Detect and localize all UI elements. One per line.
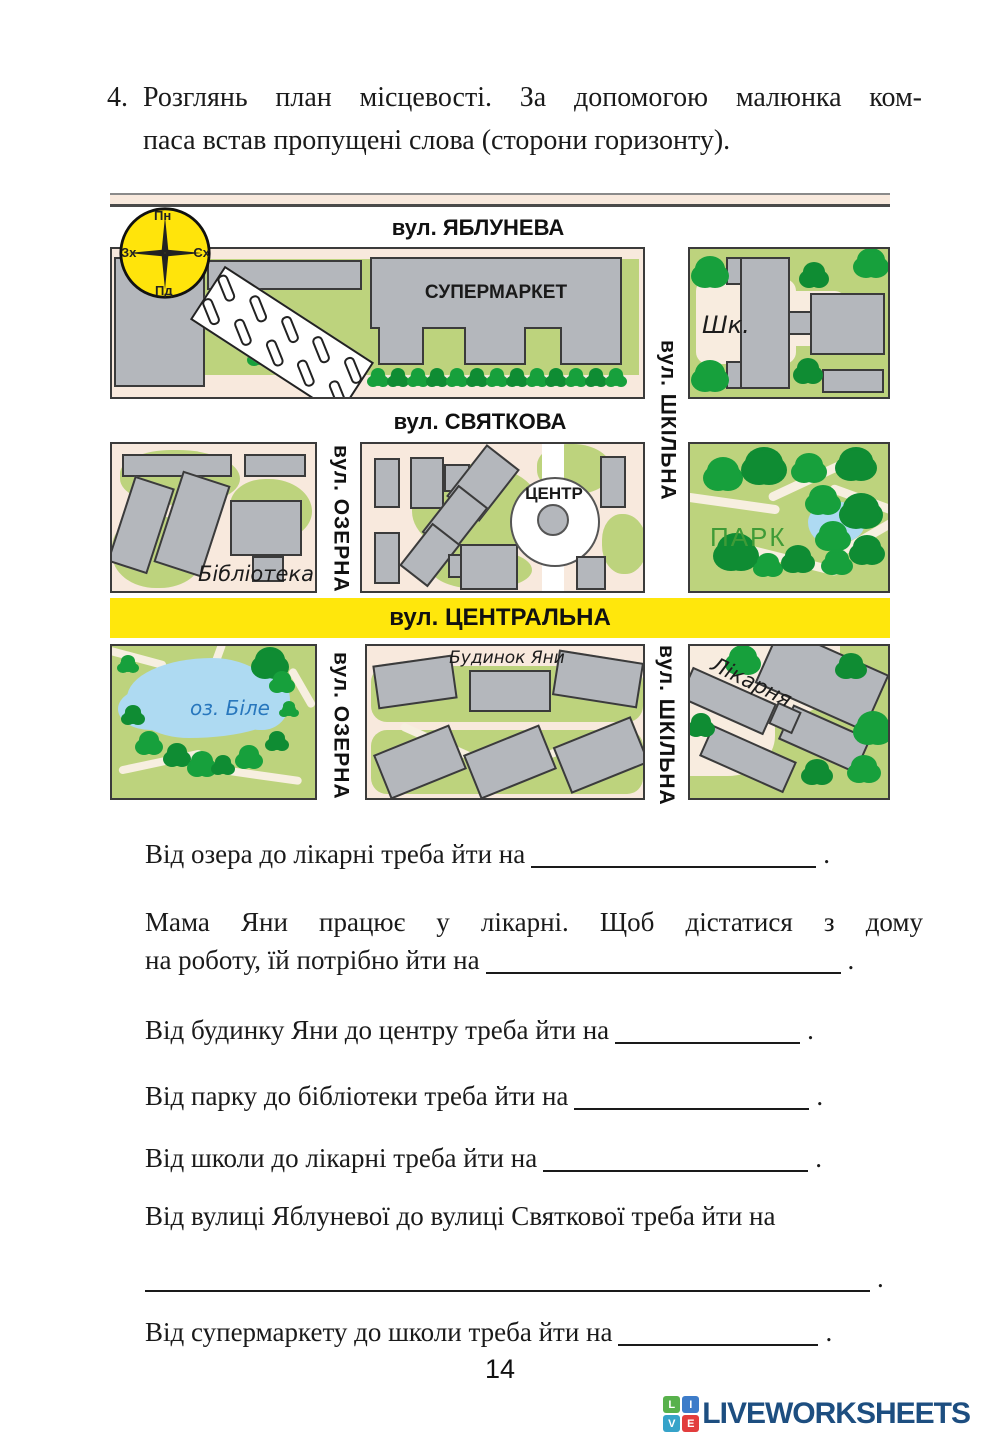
street-label-ozerna-mid: вул. ОЗЕРНА <box>317 448 365 590</box>
tree-icon <box>796 361 820 383</box>
task-instruction-line2: паса встав пропущені слова (сторони гори… <box>143 119 922 162</box>
question-7-text: Від супермаркету до школи треба йти на <box>145 1317 612 1347</box>
worksheet-page: 4. Розглянь план місцевості. За допомого… <box>0 0 1000 1439</box>
street-band-top <box>110 193 890 207</box>
tree-icon <box>166 746 188 766</box>
answer-blank-3[interactable] <box>615 1015 800 1044</box>
tree-icon <box>548 371 564 386</box>
tree-icon <box>808 488 838 514</box>
supermarket-building: СУПЕРМАРКЕТ <box>370 257 622 329</box>
question-2-line1: Мама Яни працює у лікарні. Щоб дістатися… <box>145 903 923 941</box>
compass-west-label: Зх <box>121 245 136 260</box>
parking-stripe <box>327 379 348 399</box>
street-label-shkilna-bottom: вул. ШКІЛЬНА <box>645 653 688 798</box>
task-instruction-line1: Розглянь план місцевості. За допомогою м… <box>143 76 922 119</box>
tree-icon <box>469 371 485 386</box>
tree-icon <box>410 371 426 386</box>
park-label: ПАРК <box>710 522 787 553</box>
question-5: Від школи до лікарні треба йти на. <box>145 1139 923 1177</box>
tree-icon <box>608 371 624 386</box>
tree-icon <box>429 371 445 386</box>
block-park: ПАРК <box>688 442 890 593</box>
park-path <box>688 492 780 514</box>
logo-text: LIVEWORKSHEETS <box>702 1397 970 1431</box>
tree-icon <box>390 371 406 386</box>
building <box>244 454 306 477</box>
tree-icon <box>838 450 874 480</box>
tree-icon <box>509 371 525 386</box>
building <box>822 369 884 393</box>
parking-stripe <box>248 294 269 324</box>
logo-block-v: V <box>663 1415 680 1432</box>
parking-stripe <box>201 297 222 327</box>
street-label-ozerna-bottom: вул. ОЗЕРНА <box>317 653 365 798</box>
block-school: Шк. <box>688 247 890 399</box>
page-number: 14 <box>0 1354 1000 1385</box>
parking-stripe <box>343 355 364 385</box>
tree-icon <box>694 259 726 287</box>
tree-icon <box>838 656 864 678</box>
answer-blank-2[interactable] <box>486 945 841 974</box>
task-header: 4. Розглянь план місцевості. За допомого… <box>143 76 922 162</box>
period: . <box>807 1015 814 1045</box>
tree-icon <box>489 371 505 386</box>
tree-icon <box>190 754 214 776</box>
tree-icon <box>238 748 260 768</box>
logo-block-i: I <box>682 1396 699 1413</box>
building <box>374 532 400 584</box>
tree-icon <box>802 265 826 287</box>
building <box>378 327 424 365</box>
building <box>560 327 622 365</box>
locality-map: вул. ЯБЛУНЕВА Пн Пд Сх Зх <box>110 193 890 800</box>
tree-icon <box>744 450 784 484</box>
tree-icon <box>529 371 545 386</box>
tree-icon <box>756 556 780 576</box>
street-label-svyatkova: вул. СВЯТКОВА <box>280 409 680 435</box>
tree-icon <box>856 251 886 277</box>
tree-icon <box>784 548 812 572</box>
building <box>460 544 518 590</box>
building <box>122 454 232 477</box>
tree-icon <box>370 371 386 386</box>
tree-icon <box>282 704 296 716</box>
building <box>374 458 400 508</box>
block-library: Бібліотека <box>110 442 317 593</box>
yana-house-building <box>469 670 551 712</box>
school-label: Шк. <box>702 311 750 339</box>
question-2-line2: на роботу, їй потрібно йти на. <box>145 941 923 979</box>
task-number: 4. <box>107 76 128 119</box>
tree-icon <box>120 658 136 672</box>
logo-blocks-icon: L I V E <box>663 1396 699 1432</box>
center-label: ЦЕНТР <box>514 484 594 504</box>
compass: Пн Пд Сх Зх <box>118 206 212 300</box>
parking-stripe <box>216 273 237 303</box>
roundabout-island <box>537 504 569 536</box>
period: . <box>823 839 830 869</box>
answer-blank-5[interactable] <box>543 1143 808 1172</box>
question-2-text: на роботу, їй потрібно йти на <box>145 945 480 975</box>
period: . <box>815 1143 822 1173</box>
lake-label: оз. Біле <box>180 696 280 720</box>
tree-icon <box>794 456 824 482</box>
period: . <box>877 1263 884 1293</box>
logo-block-e: E <box>682 1415 699 1432</box>
library-building <box>230 500 302 556</box>
street-label-yabluneva: вул. ЯБЛУНЕВА <box>278 215 678 241</box>
answer-blank-4[interactable] <box>574 1081 809 1110</box>
period: . <box>848 945 855 975</box>
street-tsentralna: вул. ЦЕНТРАЛЬНА <box>110 598 890 638</box>
building <box>448 554 462 578</box>
compass-east-label: Сх <box>193 245 210 260</box>
compass-south-label: Пд <box>155 283 173 298</box>
path <box>227 767 302 785</box>
tree-icon <box>138 734 160 754</box>
tree-icon <box>268 734 286 750</box>
question-7: Від супермаркету до школи треба йти на. <box>145 1313 923 1351</box>
question-1: Від озера до лікарні треба йти на. <box>145 835 923 873</box>
building <box>576 556 606 590</box>
parking-stripe <box>296 358 317 388</box>
compass-north-label: Пн <box>154 208 171 223</box>
period: . <box>825 1317 832 1347</box>
tree-icon <box>706 460 740 490</box>
answer-blank-6[interactable] <box>145 1263 870 1292</box>
tree-icon <box>856 714 890 744</box>
question-3: Від будинку Яни до центру треба йти на. <box>145 1011 923 1049</box>
question-5-text: Від школи до лікарні треба йти на <box>145 1143 537 1173</box>
period: . <box>816 1081 823 1111</box>
tree-icon <box>694 363 726 391</box>
path <box>288 667 317 709</box>
parking-stripe <box>232 317 253 347</box>
library-label: Бібліотека <box>162 562 314 586</box>
tree-icon <box>124 708 142 724</box>
tree-icon <box>842 496 880 528</box>
tree-icon <box>214 758 232 774</box>
logo-block-l: L <box>663 1396 680 1413</box>
grass-area <box>602 514 645 574</box>
answer-blank-7[interactable] <box>618 1317 818 1346</box>
question-6: Від вулиці Яблуневої до вулиці Святкової… <box>145 1197 923 1235</box>
parking-stripe <box>264 338 285 368</box>
answer-blank-1[interactable] <box>531 839 816 868</box>
tree-icon <box>568 371 584 386</box>
tree-icon <box>852 538 882 564</box>
tree-icon <box>818 524 848 550</box>
parking-stripe <box>311 335 332 365</box>
question-4-text: Від парку до бібліотеки треба йти на <box>145 1081 568 1111</box>
tree-icon <box>272 674 292 692</box>
building <box>810 293 885 355</box>
tree-row <box>370 371 624 393</box>
building <box>464 327 526 365</box>
building <box>600 456 626 508</box>
tree-icon <box>449 371 465 386</box>
question-3-text: Від будинку Яни до центру треба йти на <box>145 1015 609 1045</box>
block-hospital: Лікарня <box>688 644 890 800</box>
building <box>788 311 812 335</box>
liveworksheets-logo: L I V E LIVEWORKSHEETS <box>663 1396 970 1432</box>
building <box>410 457 444 509</box>
tree-icon <box>804 762 830 784</box>
question-1-text: Від озера до лікарні треба йти на <box>145 839 525 869</box>
tree-icon <box>690 716 712 736</box>
questions-section: Від озера до лікарні треба йти на. Мама … <box>145 835 923 1351</box>
tree-icon <box>850 758 878 782</box>
block-yana-house: Будинок Яни <box>365 644 645 800</box>
block-lake: оз. Біле <box>110 644 317 800</box>
tree-icon <box>824 552 850 574</box>
yana-house-label: Будинок Яни <box>437 648 577 668</box>
question-4: Від парку до бібліотеки треба йти на. <box>145 1077 923 1115</box>
block-center: ЦЕНТР <box>360 442 645 593</box>
parking-stripe <box>279 314 300 344</box>
question-6-blank-line: . <box>145 1259 923 1297</box>
street-label-tsentralna: вул. ЦЕНТРАЛЬНА <box>389 604 611 632</box>
tree-icon <box>588 371 604 386</box>
supermarket-label: СУПЕРМАРКЕТ <box>425 282 567 304</box>
